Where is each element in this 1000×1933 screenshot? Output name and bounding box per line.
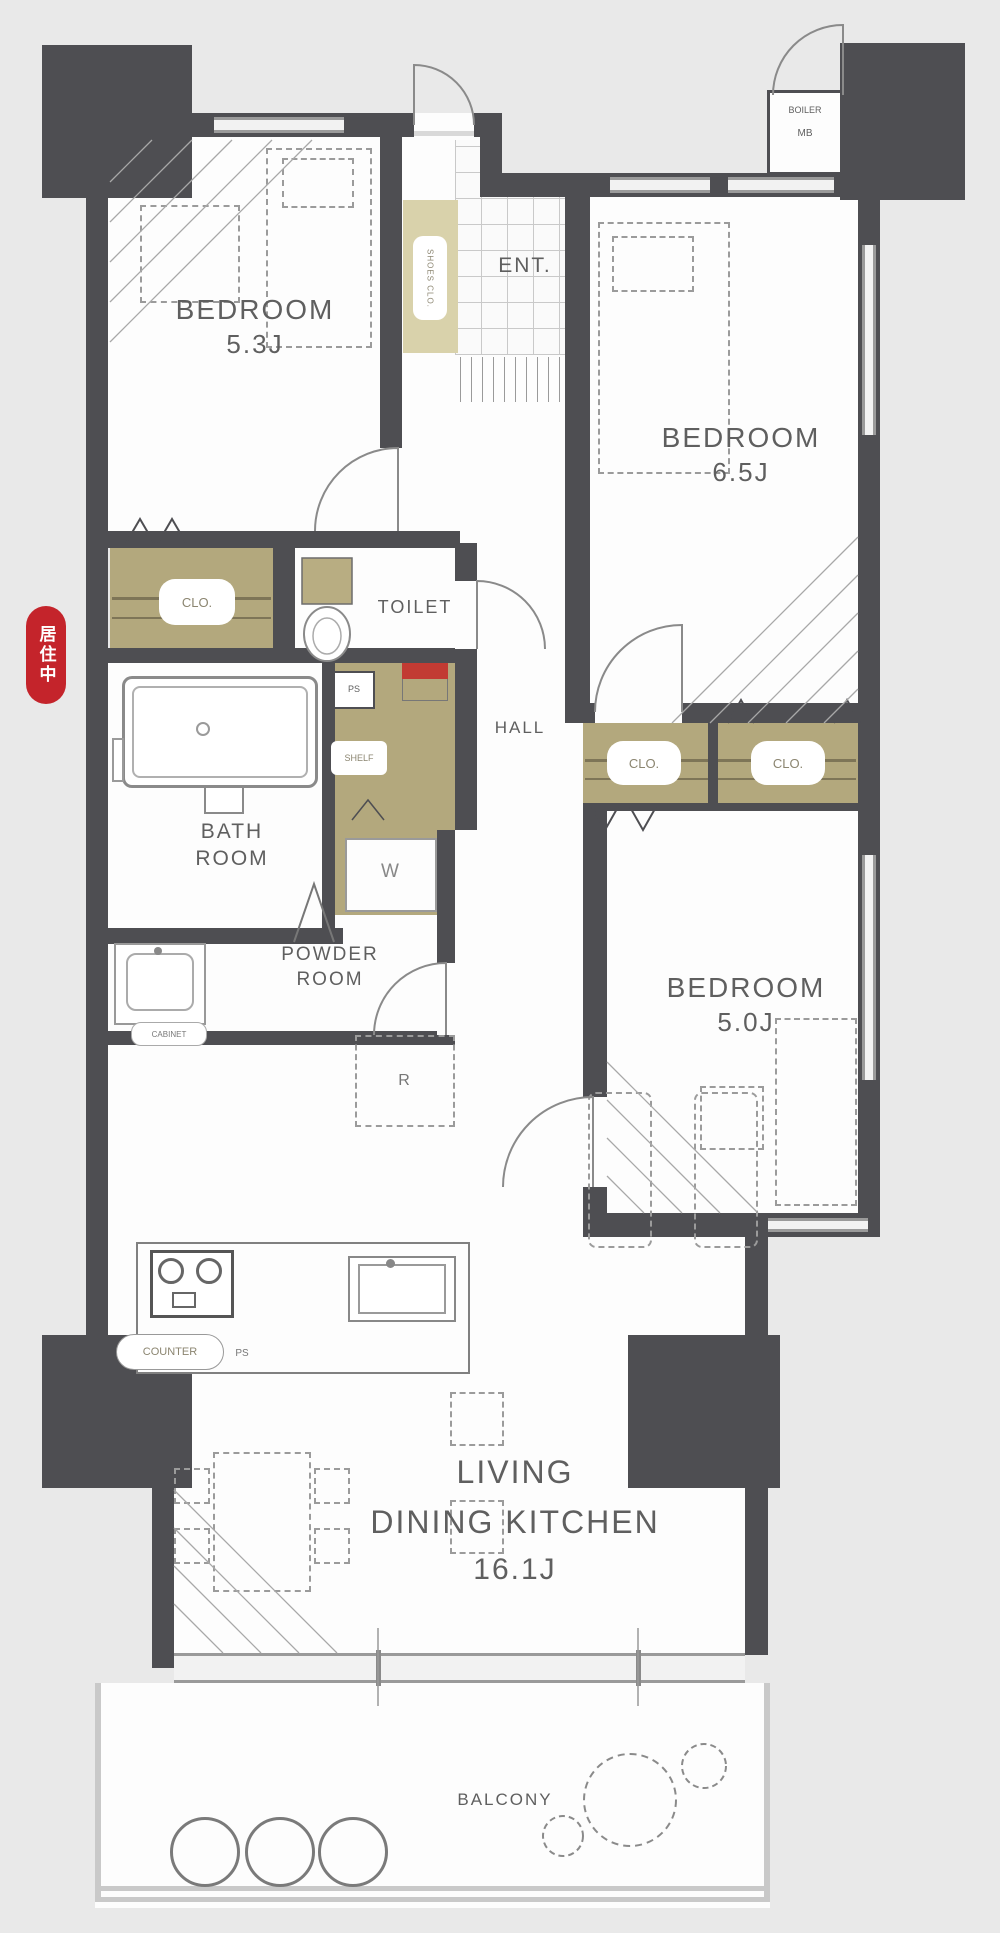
bath-shower-panel (112, 738, 124, 782)
chair-ldk-1 (174, 1468, 210, 1504)
bedroom-53-label: BEDROOM 5.3J (140, 292, 370, 362)
bedroom-50-label: BEDROOM 5.0J (631, 970, 861, 1040)
washer-label: W (345, 860, 437, 885)
exterior-cutout-bottom-right (768, 1237, 880, 1655)
shelf-text: SHELF (344, 753, 373, 763)
bathroom-label: BATH ROOM (142, 818, 322, 873)
closet-right-text: CLO. (773, 756, 803, 771)
bedroom-65-size: 6.5J (626, 456, 856, 490)
window-mullion-2 (636, 1650, 641, 1686)
window-mullion-1 (376, 1650, 381, 1686)
wall-powder-right-b (437, 915, 455, 963)
floor-plan: PS R (0, 0, 1000, 1933)
entrance-label: ENT. (478, 252, 572, 279)
window-bedroom50-bottom (768, 1218, 868, 1232)
closet-left-text: CLO. (629, 756, 659, 771)
wall-left (86, 135, 108, 1340)
counter-ps-text: PS (235, 1348, 248, 1359)
shoes-closet-label: SHOES CLO. (413, 236, 447, 320)
wall-bedroom53-right (380, 113, 402, 448)
bathroom-name-line1: BATH (142, 818, 322, 845)
wall-bedroom50-left-a (583, 807, 607, 1097)
wall-closetrow-top-b (682, 703, 858, 723)
bathtub-inner (132, 686, 308, 778)
kitchen-sink-inner (358, 1264, 446, 1314)
counter-label: COUNTER (116, 1334, 224, 1370)
wall-shelf-right (455, 663, 477, 830)
stove-burner-2 (196, 1258, 222, 1284)
balcony-rail-bottom-b (95, 1897, 770, 1902)
bathroom-name-line2: ROOM (142, 845, 322, 872)
wall-entry-right (480, 137, 502, 197)
wall-toilet-left (273, 543, 295, 663)
plant-ldk-1 (450, 1392, 504, 1446)
bedroom-65-name: BEDROOM (626, 420, 856, 456)
cabinet-text: CABINET (152, 1030, 187, 1039)
powder-name-line2: ROOM (245, 968, 415, 993)
bathtub-drain (196, 722, 210, 736)
closet-left-label: CLO. (607, 741, 681, 785)
exterior-cutout-bottom-left (42, 1488, 152, 1683)
counter-ps-label: PS (228, 1342, 256, 1363)
door-opening-bedroom53 (380, 448, 402, 531)
shelf-label: SHELF (331, 741, 387, 775)
planter-1 (170, 1817, 240, 1887)
washbasin-bowl (126, 953, 194, 1011)
door-opening-powder (437, 963, 455, 1035)
occupancy-stamp-text: 居住中 (34, 625, 59, 685)
window-bedroom65-top-a (610, 177, 710, 193)
boiler-door-arc (773, 25, 843, 95)
wall-entry-top-a (402, 113, 414, 137)
balcony-name: BALCONY (457, 1790, 552, 1809)
washbasin-faucet (154, 947, 162, 955)
wall-below-pillar-bl (152, 1488, 174, 1668)
closet-1-text: CLO. (182, 595, 212, 610)
ldk-size: 16.1J (315, 1547, 715, 1594)
entrance-name: ENT. (498, 254, 552, 277)
wall-bath-bottom (100, 928, 343, 944)
occupancy-stamp: 居住中 (26, 606, 66, 704)
toilet-name: TOILET (378, 597, 453, 617)
window-bedroom53-top (214, 117, 344, 133)
pillar-top-right (840, 43, 965, 200)
window-bedroom65-top-b (728, 177, 834, 193)
balcony-rail-left (95, 1683, 101, 1902)
counter-text: COUNTER (143, 1346, 197, 1358)
hall-label: HALL (465, 717, 575, 740)
bedroom-50-name: BEDROOM (631, 970, 861, 1006)
meter-box-text: MB (769, 122, 841, 146)
wall-closet-divider (708, 723, 718, 803)
shoes-closet-text: SHOES CLO. (426, 249, 435, 308)
entry-threshold (414, 131, 474, 136)
planter-2 (245, 1817, 315, 1887)
toilet-label: TOILET (355, 596, 475, 620)
powder-room-label: POWDER ROOM (245, 943, 415, 992)
wall-ldk-right (745, 1237, 768, 1655)
boiler-label: BOILER MB (769, 100, 841, 146)
bedroom-53-size: 5.3J (140, 328, 370, 362)
wall-powder-right-a (437, 830, 455, 915)
wall-closetrow-bottom (583, 803, 858, 811)
planter-3 (318, 1817, 388, 1887)
water-heater-top (402, 663, 448, 679)
window-bedroom65-right (862, 245, 876, 435)
ldk-name-line2: DINING KITCHEN (315, 1498, 715, 1548)
sofa-ldk-2 (694, 1092, 758, 1248)
stove-grill (172, 1292, 196, 1308)
kitchen-faucet (386, 1259, 395, 1268)
closet-1-label: CLO. (159, 579, 235, 625)
bed-bedroom50 (775, 1018, 857, 1206)
hall-name: HALL (495, 718, 546, 737)
ldk-label: LIVING DINING KITCHEN 16.1J (315, 1448, 715, 1594)
balcony-label: BALCONY (440, 1789, 570, 1812)
balcony-rail-right (764, 1683, 770, 1902)
pipe-space-box: PS (333, 671, 375, 709)
bedroom-53-name: BEDROOM (140, 292, 370, 328)
pillar-top-left (42, 45, 192, 198)
window-bedroom50-right (862, 855, 876, 1080)
cabinet-label: CABINET (131, 1022, 207, 1046)
dining-table-ldk (213, 1452, 311, 1592)
window-ldk-balcony (174, 1653, 745, 1683)
bedroom-65-label: BEDROOM 6.5J (626, 420, 856, 490)
bath-tap (204, 786, 244, 814)
chair-ldk-2 (174, 1528, 210, 1564)
stove-burner-1 (158, 1258, 184, 1284)
wall-toilet-right-b (455, 649, 477, 663)
wall-entry-top-b (474, 113, 502, 137)
dresser-bedroom53 (140, 205, 240, 303)
ldk-name-line1: LIVING (315, 1448, 715, 1498)
pillow-bedroom53 (282, 158, 354, 208)
door-opening-bedroom65 (595, 703, 682, 723)
exterior-cutout-top (502, 137, 590, 173)
balcony-rail-bottom-a (95, 1886, 770, 1891)
bedroom-50-size: 5.0J (631, 1006, 861, 1040)
powder-name-line1: POWDER (245, 943, 415, 968)
entrance-step-hatch (460, 357, 565, 402)
wall-entry-lintel (502, 173, 590, 197)
boiler-text: BOILER (769, 100, 841, 122)
sofa-ldk-1 (588, 1092, 652, 1248)
washer-text: W (381, 861, 401, 882)
closet-right-label: CLO. (751, 741, 825, 785)
refrigerator-outline: R (355, 1035, 455, 1127)
wall-toilet-bottom (108, 648, 455, 663)
refrigerator-label: R (398, 1071, 412, 1092)
pillow-bedroom65 (612, 236, 694, 292)
pipe-space-label: PS (348, 684, 360, 696)
wall-toilet-right-a (455, 543, 477, 581)
